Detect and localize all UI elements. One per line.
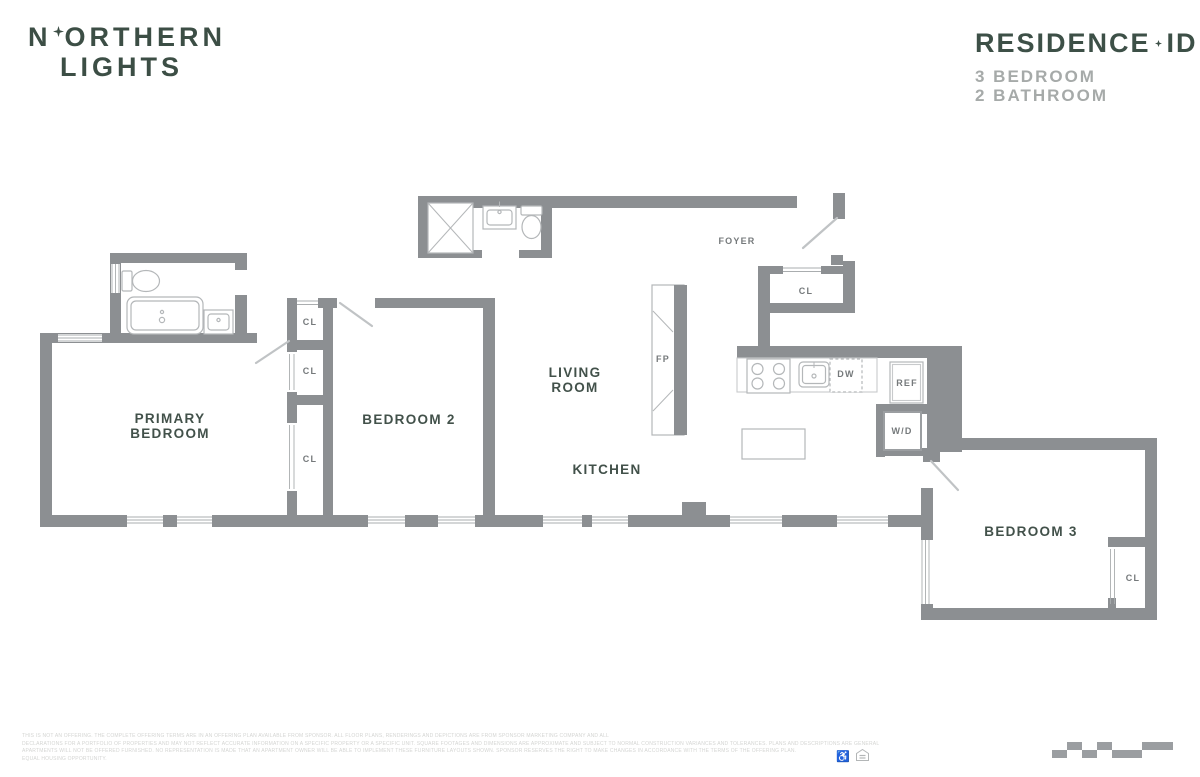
building-keyplan <box>1050 740 1174 760</box>
primary-bedroom-label-1: PRIMARY <box>135 411 206 426</box>
closet-label: CL <box>1126 573 1140 583</box>
closet-openings <box>287 268 1115 604</box>
primary-bedroom-label-2: BEDROOM <box>130 426 210 441</box>
accessibility-icon: ♿ <box>836 750 850 763</box>
primary-bedroom-door-swing <box>256 341 289 363</box>
disclaimer-line: THIS IS NOT AN OFFERING. THE COMPLETE OF… <box>22 733 1022 741</box>
window <box>592 516 628 524</box>
sink-icon <box>204 310 233 334</box>
kitchen-label: KITCHEN <box>572 462 641 477</box>
kitchen-island <box>742 429 805 459</box>
dishwasher-label: DW <box>837 369 854 379</box>
window <box>111 264 120 293</box>
bathtub-icon <box>127 297 203 334</box>
window <box>730 516 782 524</box>
closet-label: CL <box>303 366 317 376</box>
living-room-label-2: ROOM <box>551 380 598 395</box>
keyplan-block <box>1142 742 1173 750</box>
window <box>921 540 930 604</box>
fireplace-label: FP <box>656 354 670 364</box>
footer-icons: ♿ <box>836 749 869 764</box>
disclaimer-line: DECLARATIONS FOR A PORTFOLIO OF PROPERTI… <box>22 741 1022 749</box>
living-room-label-1: LIVING <box>549 365 602 380</box>
closet-label: CL <box>303 317 317 327</box>
toilet-icon <box>122 271 160 292</box>
washer-dryer-label: W/D <box>891 426 912 436</box>
stove-icon <box>747 359 790 393</box>
walls <box>40 193 1157 620</box>
keyplan-block <box>1082 750 1097 758</box>
shower-icon <box>428 203 473 253</box>
kitchen-sink-icon <box>799 362 829 387</box>
bedroom2-label: BEDROOM 2 <box>362 412 455 427</box>
window <box>837 516 888 524</box>
keyplan-block <box>1097 742 1112 750</box>
window <box>438 516 475 524</box>
sink-icon <box>483 202 516 230</box>
keyplan-block <box>1067 742 1082 750</box>
bedroom2-door-swing <box>340 303 372 326</box>
window <box>58 334 102 342</box>
bedroom3-label: BEDROOM 3 <box>984 524 1077 539</box>
keyplan-block <box>1052 750 1067 758</box>
window <box>368 516 405 524</box>
entry-door-swing <box>803 218 837 248</box>
floorplan-drawing: PRIMARY BEDROOM BEDROOM 2 LIVING ROOM KI… <box>0 0 1200 777</box>
legal-disclaimer: THIS IS NOT AN OFFERING. THE COMPLETE OF… <box>22 733 1022 763</box>
bedroom3-door-swing <box>931 461 958 490</box>
foyer-label: FOYER <box>718 236 755 246</box>
closet-label: CL <box>799 286 813 296</box>
disclaimer-line: EQUAL HOUSING OPPORTUNITY. <box>22 756 1022 764</box>
floorplan-page: NORTHERN LIGHTS RESIDENCEID 3 BEDROOM 2 … <box>0 0 1200 777</box>
window <box>177 516 212 524</box>
closet-label: CL <box>303 454 317 464</box>
disclaimer-line: APARTMENTS WILL NOT BE OFFERED FURNISHED… <box>22 748 1022 756</box>
room-labels: PRIMARY BEDROOM BEDROOM 2 LIVING ROOM KI… <box>130 236 1140 583</box>
keyplan-block <box>1112 750 1142 758</box>
window <box>127 516 163 524</box>
toilet-icon <box>521 206 542 239</box>
window <box>543 516 582 524</box>
equal-housing-icon <box>856 749 869 764</box>
refrigerator-label: REF <box>896 378 918 388</box>
